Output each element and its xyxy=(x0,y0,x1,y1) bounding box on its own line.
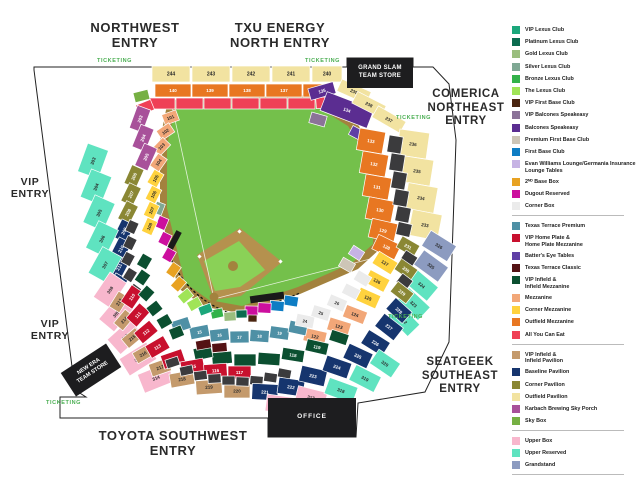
home-plate-circle xyxy=(210,293,219,302)
legend-label: VIP Lexus Club xyxy=(525,26,564,34)
legend-item: All You Can Eat xyxy=(512,331,638,340)
legend-item: Premium First Base Club xyxy=(512,136,638,145)
legend-label: Outfield Pavilion xyxy=(525,393,568,401)
legend-item: VIP First Base Club xyxy=(512,99,638,108)
field xyxy=(160,95,381,314)
legend-swatch xyxy=(512,294,520,302)
legend-label: Platinum Lexus Club xyxy=(525,38,578,46)
legend-label: Gold Lexus Club xyxy=(525,50,568,58)
seat-section[interactable] xyxy=(387,135,403,154)
legend-label: Karbach Brewing Sky Porch xyxy=(525,405,597,413)
legend-item: VIP Balcones Speakeasy xyxy=(512,111,638,120)
seat-section[interactable] xyxy=(270,300,285,311)
seat-section[interactable] xyxy=(396,222,413,238)
seat-section-131[interactable]: 131 xyxy=(362,174,391,200)
seat-section[interactable] xyxy=(234,354,256,366)
seat-section[interactable] xyxy=(212,351,233,365)
legend-item: Sky Box xyxy=(512,417,638,426)
legend-swatch xyxy=(512,63,520,71)
seat-section[interactable] xyxy=(134,269,150,286)
legend-swatch xyxy=(512,99,520,107)
seat-section-label: 241 xyxy=(287,72,296,78)
seat-section-label: 219 xyxy=(205,384,213,390)
seat-section-label: 244 xyxy=(167,72,176,78)
legend-swatch xyxy=(512,331,520,339)
seat-section[interactable] xyxy=(391,171,408,190)
legend-item: Platinum Lexus Club xyxy=(512,38,638,47)
legend-divider xyxy=(512,430,624,431)
legend-swatch xyxy=(512,50,520,58)
legend-item: VIP Infield & Infield Mezzanine xyxy=(512,276,638,291)
legend-swatch xyxy=(512,87,520,95)
legend-item: Grandstand xyxy=(512,461,638,470)
legend-label: Batter's Eye Tables xyxy=(525,252,574,260)
legend-swatch xyxy=(512,202,520,210)
seat-section-243[interactable]: 243 xyxy=(192,66,230,82)
legend-item: 2ᴺᴰ Base Box xyxy=(512,178,638,187)
seat-section[interactable] xyxy=(283,295,298,307)
seat-section-label: 140 xyxy=(169,88,177,93)
seat-section-label: 243 xyxy=(207,72,216,78)
legend-swatch xyxy=(512,449,520,457)
seat-section[interactable] xyxy=(194,370,208,381)
legend-label: Upper Reserved xyxy=(525,449,566,457)
seat-section-label: 117 xyxy=(236,370,244,375)
seat-section[interactable] xyxy=(236,377,249,386)
legend-item: Upper Reserved xyxy=(512,449,638,458)
legend-swatch xyxy=(512,461,520,469)
seat-section-16[interactable]: 16 xyxy=(209,328,229,342)
seat-section-label: 242 xyxy=(247,72,256,78)
seat-section-124[interactable]: 124 xyxy=(342,304,367,324)
legend-swatch xyxy=(512,252,520,260)
legend-swatch xyxy=(512,75,520,83)
seat-section-242[interactable]: 242 xyxy=(232,66,270,82)
legend-label: Texas Terrace Classic xyxy=(525,264,581,272)
ticketing-label-northeast: TICKETING xyxy=(396,115,431,121)
legend-item: Karbach Brewing Sky Porch xyxy=(512,405,638,414)
legend-label: Outfield Mezzanine xyxy=(525,318,574,326)
office-box: OFFICE xyxy=(268,398,356,437)
ticketing-label-southeast: TICKETING xyxy=(388,314,423,320)
legend-swatch xyxy=(512,136,520,144)
legend-swatch xyxy=(512,190,520,198)
legend-swatch xyxy=(512,124,520,132)
ticketing-label-northwest: TICKETING xyxy=(97,58,132,64)
legend-label: Evan Williams Lounge/Germania Insurance … xyxy=(525,160,638,175)
legend-swatch xyxy=(512,351,520,359)
entry-label-comerica-northeast: COMERICA NORTHEAST ENTRY xyxy=(420,88,512,129)
seat-section[interactable] xyxy=(258,352,281,366)
pitchers-mound xyxy=(228,261,238,271)
seat-section-label: 138 xyxy=(243,88,251,93)
seat-section[interactable] xyxy=(236,310,247,318)
legend-label: Corner Mezzanine xyxy=(525,306,571,314)
legend-swatch xyxy=(512,276,520,284)
seat-section-140[interactable]: 140 xyxy=(155,84,191,97)
seat-section[interactable] xyxy=(263,372,277,383)
seat-section-130[interactable]: 130 xyxy=(365,197,395,224)
entry-label-seatgeek-southeast: SEATGEEK SOUTHEAST ENTRY xyxy=(410,356,510,397)
seat-section[interactable] xyxy=(224,312,237,322)
legend-label: VIP Infield & Infield Pavilion xyxy=(525,351,563,366)
seat-section-label: 139 xyxy=(206,88,214,93)
legend-item: Outfield Mezzanine xyxy=(512,318,638,327)
ticketing-label-southwest: TICKETING xyxy=(46,400,81,406)
seat-section[interactable] xyxy=(248,315,257,322)
legend-label: 2ᴺᴰ Base Box xyxy=(525,178,559,186)
legend-swatch xyxy=(512,160,520,168)
legend-label: VIP Home Plate & Home Plate Mezzanine xyxy=(525,234,583,249)
legend-item: Batter's Eye Tables xyxy=(512,252,638,261)
seat-section-17[interactable]: 17 xyxy=(230,331,249,343)
legend-item: Outfield Pavilion xyxy=(512,393,638,402)
legend-item: VIP Lexus Club xyxy=(512,26,638,35)
seat-section-240[interactable]: 240 xyxy=(312,66,342,82)
entry-label-vip-lower: VIP ENTRY xyxy=(28,318,72,343)
seat-section-244[interactable]: 244 xyxy=(152,66,190,82)
legend-label: VIP Infield & Infield Mezzanine xyxy=(525,276,569,291)
seat-section[interactable] xyxy=(258,303,272,314)
legend-item: The Lexus Club xyxy=(512,87,638,96)
seat-section[interactable] xyxy=(393,189,410,207)
legend-item: Texas Terrace Premium xyxy=(512,222,638,231)
legend-divider xyxy=(512,344,624,345)
legend-item: First Base Club xyxy=(512,148,638,157)
legend-label: Texas Terrace Premium xyxy=(525,222,585,230)
seat-section-137[interactable]: 137 xyxy=(266,84,302,97)
seat-section[interactable] xyxy=(212,342,228,352)
legend-swatch xyxy=(512,264,520,272)
legend-label: The Lexus Club xyxy=(525,87,565,95)
seat-section-18[interactable]: 18 xyxy=(250,329,270,342)
seat-section-208[interactable]: 208 xyxy=(118,201,139,225)
seat-section-133[interactable]: 133 xyxy=(356,128,385,154)
legend-divider xyxy=(512,474,624,475)
seat-section[interactable] xyxy=(222,376,235,385)
legend-label: Corner Pavilion xyxy=(525,381,565,389)
legend-swatch xyxy=(512,318,520,326)
seat-section[interactable] xyxy=(176,98,203,109)
legend-item: Corner Pavilion xyxy=(512,381,638,390)
legend-label: Silver Lexus Club xyxy=(525,63,570,71)
seat-section[interactable] xyxy=(204,98,231,109)
legend-label: Corner Box xyxy=(525,202,554,210)
legend-swatch xyxy=(512,381,520,389)
seat-section[interactable] xyxy=(260,98,287,109)
legend-label: Premium First Base Club xyxy=(525,136,589,144)
seat-section-132[interactable]: 132 xyxy=(359,151,388,177)
seat-section-label: 240 xyxy=(323,72,332,78)
legend-label: Mezzanine xyxy=(525,294,552,302)
entry-label-northwest: NORTHWEST ENTRY xyxy=(70,20,200,51)
seat-section[interactable] xyxy=(395,206,412,223)
legend-swatch xyxy=(512,368,520,376)
legend-label: All You Can Eat xyxy=(525,331,565,339)
ticketing-label-north: TICKETING xyxy=(305,58,340,64)
legend-divider xyxy=(512,215,624,216)
legend-item: Corner Mezzanine xyxy=(512,306,638,315)
legend-swatch xyxy=(512,306,520,314)
seat-section-108[interactable]: 108 xyxy=(141,217,157,235)
legend-label: Upper Box xyxy=(525,437,552,445)
legend-swatch xyxy=(512,26,520,34)
legend-swatch xyxy=(512,393,520,401)
legend-label: First Base Club xyxy=(525,148,565,156)
legend-item: Dugout Reserved xyxy=(512,190,638,199)
seat-section-label: 137 xyxy=(280,88,288,93)
seat-section-label: 116 xyxy=(212,368,220,374)
seat-section-106[interactable]: 106 xyxy=(145,185,162,203)
legend-item: Mezzanine xyxy=(512,294,638,303)
legend-swatch xyxy=(512,417,520,425)
legend-label: Dugout Reserved xyxy=(525,190,570,198)
legend-item: Bronze Lexus Club xyxy=(512,75,638,84)
seat-section-label: 17 xyxy=(237,335,242,340)
legend-item: VIP Infield & Infield Pavilion xyxy=(512,351,638,366)
legend-swatch xyxy=(512,437,520,445)
legend-item: Gold Lexus Club xyxy=(512,50,638,59)
grand-slam-team-store: GRAND SLAM TEAM STORE xyxy=(347,58,413,88)
legend-swatch xyxy=(512,111,520,119)
seat-section-label: 220 xyxy=(233,389,241,394)
legend-swatch xyxy=(512,178,520,186)
legend-item: Silver Lexus Club xyxy=(512,63,638,72)
legend-item: Evan Williams Lounge/Germania Insurance … xyxy=(512,160,638,175)
seat-section[interactable] xyxy=(136,253,152,270)
legend-label: VIP First Base Club xyxy=(525,99,575,107)
seat-section[interactable] xyxy=(138,285,155,302)
legend-swatch xyxy=(512,222,520,230)
legend-label: Balcones Speakeasy xyxy=(525,124,578,132)
seat-section-19[interactable]: 19 xyxy=(269,326,289,341)
seat-section[interactable] xyxy=(156,313,173,329)
legend-label: VIP Balcones Speakeasy xyxy=(525,111,588,119)
legend-swatch xyxy=(512,148,520,156)
legend-label: Sky Box xyxy=(525,417,546,425)
legend-item: Texas Terrace Classic xyxy=(512,264,638,273)
seat-section[interactable] xyxy=(232,98,259,109)
seat-section-138[interactable]: 138 xyxy=(229,84,265,97)
legend-label: Bronze Lexus Club xyxy=(525,75,574,83)
seat-section[interactable] xyxy=(208,374,221,384)
legend-label: Baseline Pavilion xyxy=(525,368,569,376)
seat-section-118[interactable]: 118 xyxy=(281,347,305,362)
entry-label-toyota-southwest: TOYOTA SOUTHWEST ENTRY xyxy=(78,428,268,459)
legend-item: Upper Box xyxy=(512,437,638,446)
seat-section-15[interactable]: 15 xyxy=(189,324,210,339)
seat-section-139[interactable]: 139 xyxy=(192,84,228,97)
seat-section[interactable] xyxy=(146,300,163,317)
legend-item: Balcones Speakeasy xyxy=(512,124,638,133)
stadium-seat-map-page: 2442432422412401401391381371361351342392… xyxy=(0,0,640,479)
legend-item: Baseline Pavilion xyxy=(512,368,638,377)
seat-section-241[interactable]: 241 xyxy=(272,66,310,82)
legend-swatch xyxy=(512,405,520,413)
legend-label: Grandstand xyxy=(525,461,555,469)
legend-item: Corner Box xyxy=(512,202,638,211)
legend: VIP Lexus ClubPlatinum Lexus ClubGold Le… xyxy=(512,26,638,479)
legend-item: VIP Home Plate & Home Plate Mezzanine xyxy=(512,234,638,249)
legend-swatch xyxy=(512,38,520,46)
seat-section[interactable] xyxy=(389,153,405,172)
entry-label-txu-north: TXU ENERGY NORTH ENTRY xyxy=(205,20,355,51)
entry-label-vip-upper: VIP ENTRY xyxy=(8,176,52,201)
legend-swatch xyxy=(512,234,520,242)
